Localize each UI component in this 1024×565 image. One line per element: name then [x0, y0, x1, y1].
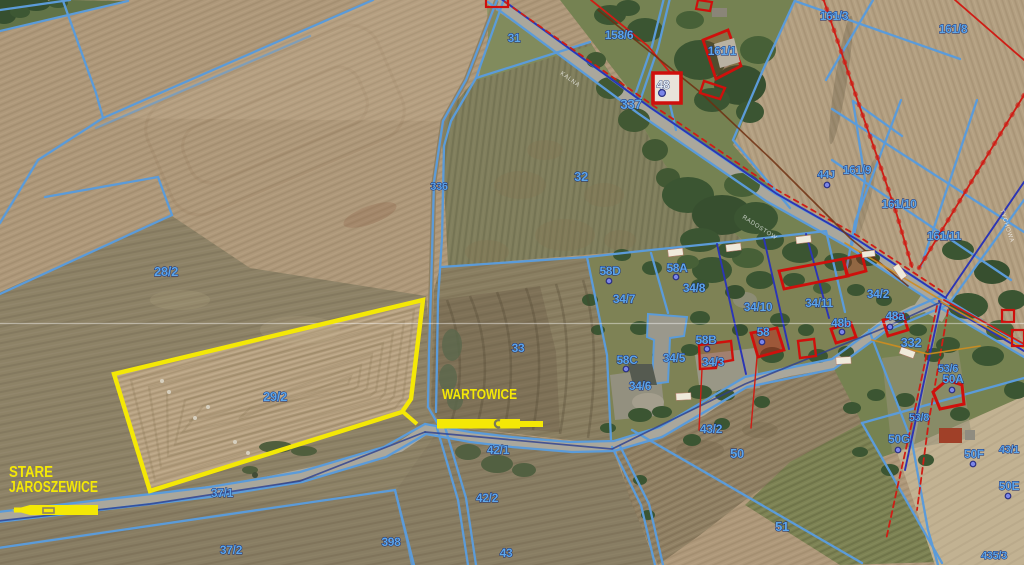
svg-text:43: 43 [500, 546, 513, 560]
svg-text:161/9: 161/9 [843, 163, 872, 177]
svg-text:31: 31 [508, 31, 521, 45]
svg-text:50F: 50F [964, 447, 984, 461]
svg-text:34/10: 34/10 [744, 300, 773, 314]
svg-text:332: 332 [901, 335, 922, 350]
svg-text:48: 48 [656, 78, 670, 92]
svg-text:337: 337 [620, 97, 642, 112]
svg-text:33: 33 [512, 341, 525, 355]
svg-text:58B: 58B [695, 333, 717, 347]
svg-text:37/2: 37/2 [220, 543, 243, 557]
svg-text:161/3: 161/3 [820, 9, 849, 23]
svg-text:42/2: 42/2 [476, 491, 499, 505]
svg-text:JAROSZEWICE: JAROSZEWICE [9, 479, 98, 496]
svg-text:51: 51 [775, 519, 789, 534]
svg-text:43/2: 43/2 [700, 422, 723, 436]
svg-text:398: 398 [381, 535, 401, 549]
svg-text:58C: 58C [616, 353, 638, 367]
svg-text:34/11: 34/11 [805, 296, 833, 310]
svg-text:37/1: 37/1 [211, 486, 234, 500]
svg-text:34/5: 34/5 [663, 351, 686, 365]
svg-text:32: 32 [574, 169, 588, 184]
svg-text:34/3: 34/3 [702, 355, 725, 369]
svg-text:58D: 58D [599, 264, 621, 278]
svg-text:34/8: 34/8 [683, 281, 706, 295]
svg-text:158/6: 158/6 [605, 28, 634, 42]
svg-text:58A: 58A [666, 261, 688, 275]
svg-text:44J: 44J [817, 169, 835, 181]
svg-text:50: 50 [730, 446, 744, 461]
svg-text:WARTOWICE: WARTOWICE [442, 386, 517, 403]
svg-text:43/1: 43/1 [999, 444, 1019, 456]
svg-text:34/7: 34/7 [613, 292, 636, 306]
svg-text:48a: 48a [885, 309, 905, 323]
svg-text:161/1: 161/1 [708, 44, 737, 58]
svg-text:161/8: 161/8 [939, 22, 968, 36]
svg-text:161/10: 161/10 [882, 197, 918, 211]
svg-text:34/6: 34/6 [629, 379, 652, 393]
svg-text:29/2: 29/2 [263, 389, 287, 404]
svg-text:50A: 50A [942, 372, 964, 386]
svg-text:50G: 50G [888, 432, 910, 446]
svg-text:336: 336 [430, 181, 448, 193]
svg-text:53/8: 53/8 [909, 412, 929, 424]
svg-text:50E: 50E [999, 479, 1020, 493]
svg-text:58: 58 [757, 325, 770, 339]
svg-text:34/2: 34/2 [867, 287, 890, 301]
svg-text:161/11: 161/11 [927, 229, 962, 243]
svg-text:435/3: 435/3 [981, 550, 1007, 562]
svg-text:48b: 48b [831, 316, 851, 330]
svg-text:28/2: 28/2 [154, 264, 178, 279]
svg-text:42/1: 42/1 [487, 443, 510, 457]
